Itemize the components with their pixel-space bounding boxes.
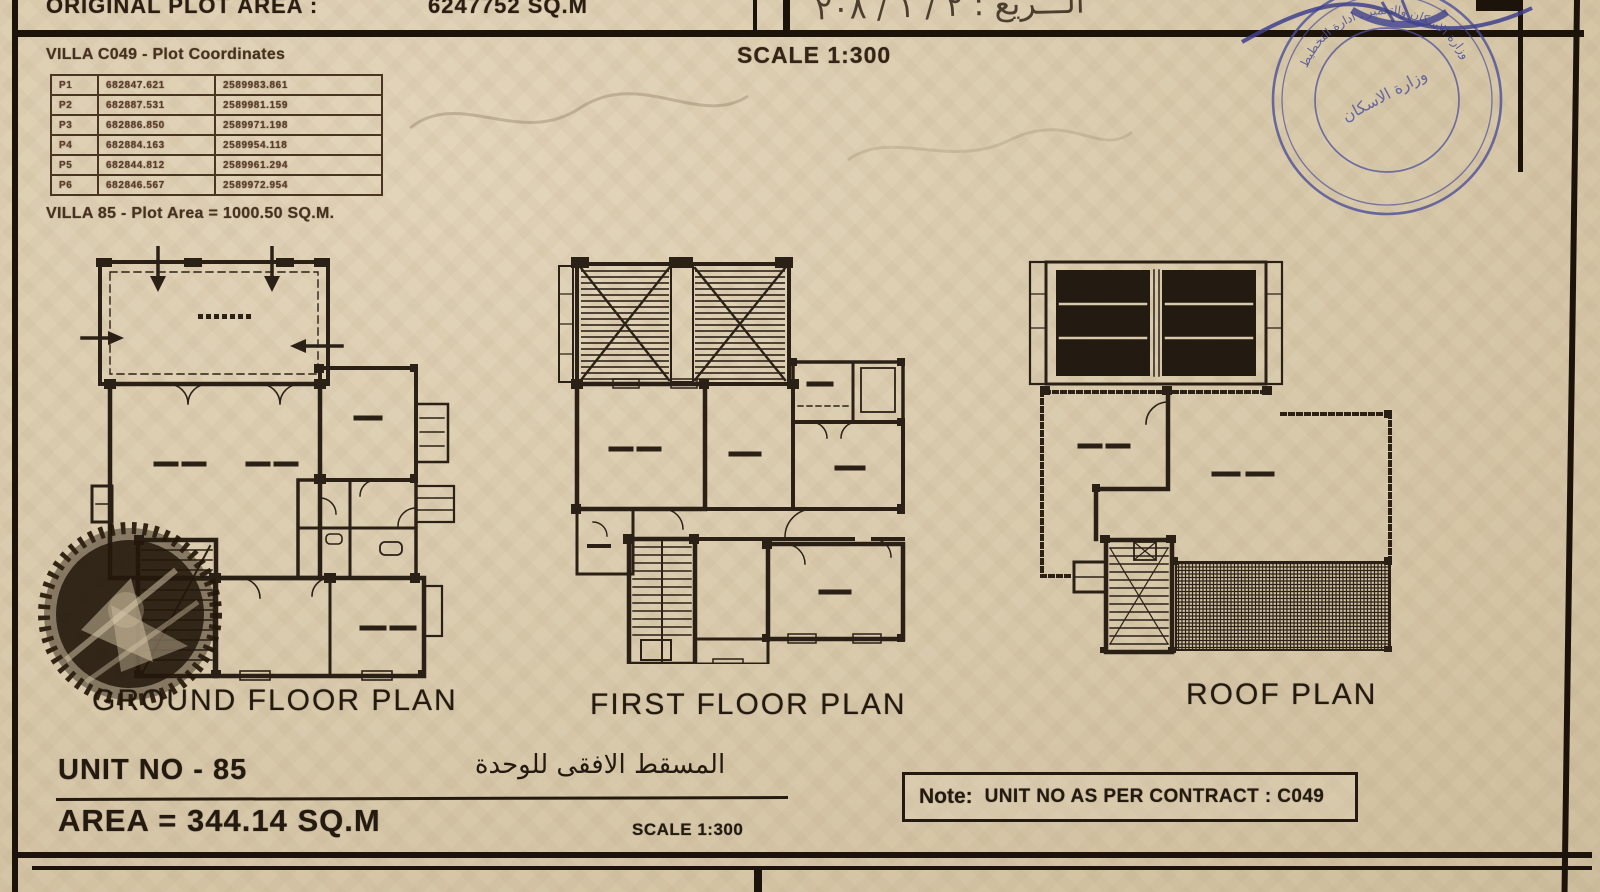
point-id: P3	[51, 115, 98, 135]
stamp-center-text: وزارة الاسكان	[1339, 65, 1431, 127]
plot-area-line: VILLA 85 - Plot Area = 1000.50 SQ.M.	[46, 205, 334, 223]
point-id: P6	[51, 175, 98, 195]
faint-pencil-scribble	[400, 66, 760, 176]
unit-number: UNIT NO - 85	[58, 754, 247, 787]
original-plot-area-label: ORIGINAL PLOT AREA :	[46, 0, 318, 19]
point-id: P2	[51, 95, 98, 115]
easting: 682886.850	[98, 115, 215, 135]
scanned-plan-sheet: ORIGINAL PLOT AREA : 6247752 SQ.M الـــر…	[0, 0, 1600, 892]
easting: 682844.812	[98, 155, 215, 175]
easting: 682847.621	[98, 75, 215, 95]
northing: 2589972.954	[215, 175, 382, 195]
contract-note-box: Note: UNIT NO AS PER CONTRACT : C049	[902, 772, 1358, 822]
easting: 682884.163	[98, 135, 215, 155]
table-row: P3682886.8502589971.198	[51, 115, 382, 135]
northing: 2589981.159	[215, 95, 382, 115]
plot-coordinates-title: VILLA C049 - Plot Coordinates	[46, 46, 285, 64]
first-floor-plan-label: FIRST FLOOR PLAN	[590, 688, 907, 722]
arabic-sheet-title: المسقط الافقى للوحدة	[420, 750, 780, 780]
original-plot-area-value: 6247752 SQ.M	[428, 0, 588, 19]
blue-ministry-stamp: وزارة الاسكان والتعمير ـ ادارة التخطيط و…	[1232, 0, 1542, 218]
table-row: P5682844.8122589961.294	[51, 155, 382, 175]
border-left	[12, 0, 18, 892]
point-id: P5	[51, 155, 98, 175]
border-bottom-rule-2	[32, 866, 1592, 870]
dark-round-stamp	[26, 510, 236, 720]
northing: 2589983.861	[215, 75, 382, 95]
table-row: P1682847.6212589983.861	[51, 75, 382, 95]
point-id: P1	[51, 75, 98, 95]
easting: 682887.531	[98, 95, 215, 115]
northing: 2589961.294	[215, 155, 382, 175]
faint-pencil-scribble	[840, 110, 1140, 190]
note-text: UNIT NO AS PER CONTRACT : C049	[985, 786, 1325, 808]
bottom-panel-divider	[754, 866, 762, 892]
table-row: P4682884.1632589954.118	[51, 135, 382, 155]
easting: 682846.567	[98, 175, 215, 195]
top-strip-divider-2	[783, 0, 790, 30]
scale-bottom: SCALE 1:300	[632, 820, 743, 840]
northing: 2589971.198	[215, 115, 382, 135]
roof-plan-label: ROOF PLAN	[1186, 678, 1377, 712]
border-right	[1561, 0, 1580, 892]
scale-top: SCALE 1:300	[737, 42, 891, 69]
table-row: P2682887.5312589981.159	[51, 95, 382, 115]
plot-coordinates-table: P1682847.6212589983.861 P2682887.5312589…	[50, 74, 383, 196]
first-floor-plan-drawing	[553, 244, 938, 664]
point-id: P4	[51, 135, 98, 155]
border-bottom-rule-1	[12, 852, 1592, 858]
handwritten-reference: الـــريع : ٢ / ١ / ٢٠٨	[815, 0, 1086, 28]
northing: 2589954.118	[215, 135, 382, 155]
note-label: Note:	[919, 785, 973, 809]
title-block-underline	[56, 796, 788, 801]
unit-area: AREA = 344.14 SQ.M	[58, 803, 381, 839]
roof-plan-drawing	[1016, 244, 1401, 664]
table-row: P6682846.5672589972.954	[51, 175, 382, 195]
top-strip-divider-1	[753, 0, 757, 30]
